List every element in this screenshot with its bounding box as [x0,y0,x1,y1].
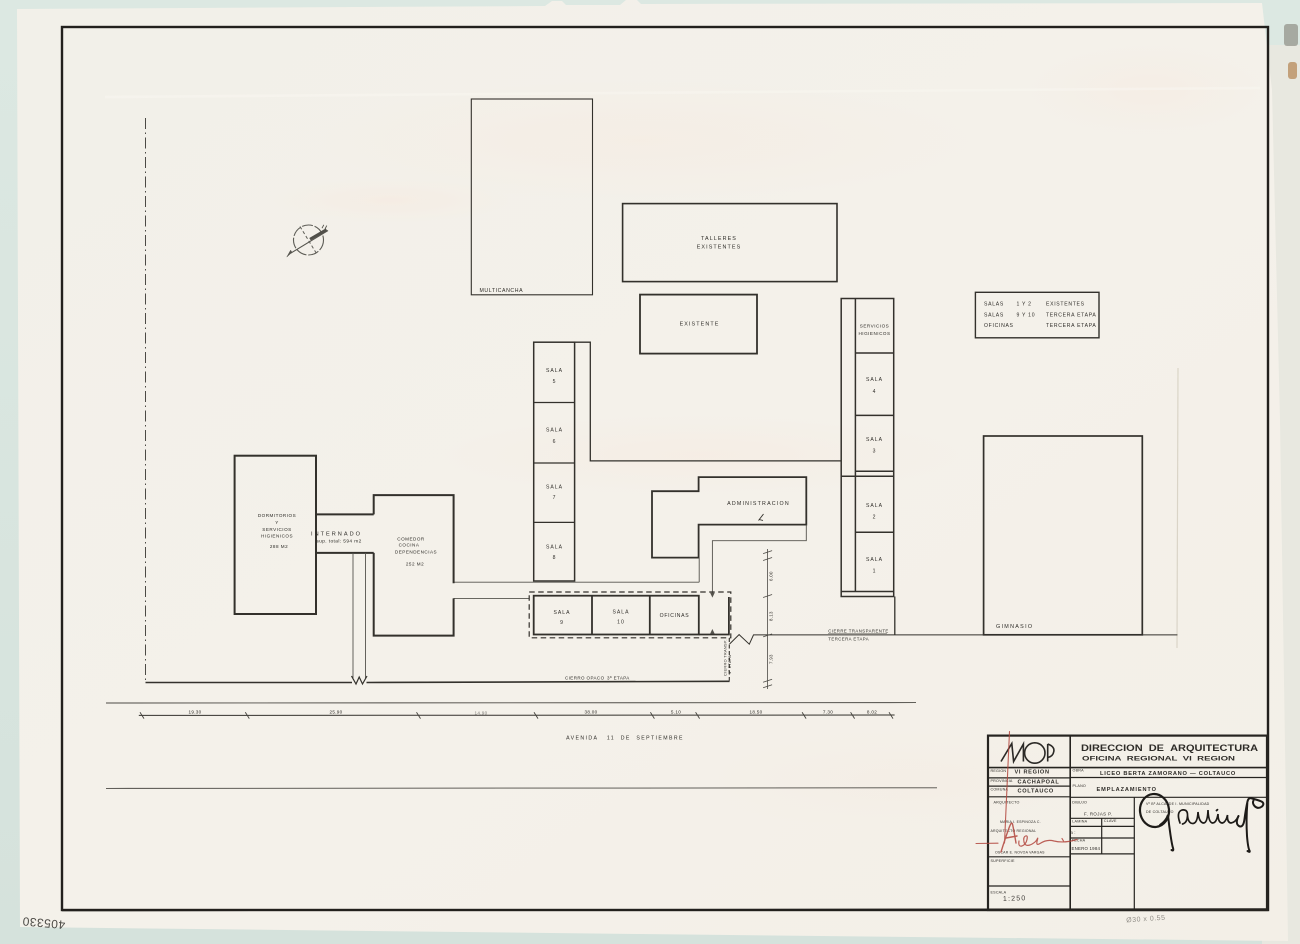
svg-text:9 Y 10: 9 Y 10 [1017,313,1036,319]
svg-text:SALAS: SALAS [984,302,1004,308]
svg-text:COCINA: COCINA [399,543,420,548]
svg-text:INTERNADO: INTERNADO [311,532,362,538]
svg-text:SALA: SALA [866,377,883,383]
svg-text:18.50: 18.50 [750,710,763,715]
svg-text:CLAVE: CLAVE [1104,819,1117,823]
svg-text:3ª ETAPA: 3ª ETAPA [607,676,630,681]
svg-text:EMPLAZAMIENTO: EMPLAZAMIENTO [1097,787,1157,793]
svg-text:F. ROJAS P.: F. ROJAS P. [1084,812,1112,817]
svg-text:SALAS: SALAS [984,313,1004,319]
svg-text:7: 7 [553,495,557,501]
svg-text:ESCALA: ESCALA [991,890,1007,894]
svg-text:Vº Bº ALCALDE I. MUNICIPALIDAD: Vº Bº ALCALDE I. MUNICIPALIDAD [1146,802,1210,806]
svg-text:sup. total: 594 m2: sup. total: 594 m2 [316,539,361,545]
svg-text:OFICINA REGIONAL VI REGION: OFICINA REGIONAL VI REGION [1082,756,1236,763]
svg-text:EXISTENTES: EXISTENTES [697,245,742,251]
svg-text:LICEO BERTA ZAMORANO — COLTAUC: LICEO BERTA ZAMORANO — COLTAUCO [1100,771,1236,777]
svg-text:CACHAPOAL: CACHAPOAL [1018,780,1060,786]
svg-text:AVENIDA 11 DE SEPTIEMBRE: AVENIDA 11 DE SEPTIEMBRE [566,736,684,742]
svg-text:DORMITORIOS: DORMITORIOS [258,513,296,518]
svg-text:5: 5 [553,379,557,385]
svg-text:MARIA I. ESPINOZA C.: MARIA I. ESPINOZA C. [1000,820,1041,824]
svg-text:MULTICANCHA: MULTICANCHA [480,288,524,294]
svg-text:25.90: 25.90 [330,710,343,715]
svg-text:OFICINAS: OFICINAS [660,613,690,619]
svg-text:ADMINISTRACION: ADMINISTRACION [727,501,790,507]
svg-text:ENERO 1984: ENERO 1984 [1072,846,1101,851]
svg-text:7.30: 7.30 [823,710,833,715]
svg-text:TERCERA ETAPA: TERCERA ETAPA [828,636,869,641]
svg-text:OSCAR E. NOVOA VARGAS: OSCAR E. NOVOA VARGAS [995,851,1045,855]
svg-text:6: 6 [553,439,557,445]
svg-text:6.00: 6.00 [768,571,773,581]
svg-text:288 M2: 288 M2 [270,544,288,549]
svg-text:VI REGION: VI REGION [1015,769,1050,775]
svg-text:TALLERES: TALLERES [701,236,737,242]
svg-text:SALA: SALA [546,428,563,434]
svg-text:252 M2: 252 M2 [406,562,424,567]
svg-text:SALA: SALA [612,610,629,616]
svg-text:3: 3 [873,449,877,455]
svg-text:COMEDOR: COMEDOR [397,537,425,542]
svg-text:SALA: SALA [866,503,883,509]
svg-text:TERCERA ETAPA: TERCERA ETAPA [1046,313,1097,319]
svg-text:19.30: 19.30 [189,710,202,715]
svg-text:EXISTENTE: EXISTENTE [680,321,720,327]
svg-text:38.00: 38.00 [585,710,598,715]
svg-text:7.93: 7.93 [768,654,773,664]
svg-text:14.90: 14.90 [475,711,488,716]
svg-text:4: 4 [873,389,877,395]
svg-text:EXISTENTES: EXISTENTES [1046,302,1085,308]
svg-text:DIRECCION DE ARQUITECTURA: DIRECCION DE ARQUITECTURA [1081,742,1258,753]
svg-text:8.02: 8.02 [867,710,877,715]
svg-text:8.13: 8.13 [768,611,773,621]
svg-text:10: 10 [617,620,625,626]
svg-text:DEPENDENCIAS: DEPENDENCIAS [395,550,437,555]
svg-text:1ª ETAPA: 1ª ETAPA [727,655,732,674]
svg-text:SALA: SALA [866,557,883,563]
svg-text:1:250: 1:250 [1003,895,1027,903]
svg-text:8: 8 [553,555,557,561]
svg-text:PLANO: PLANO [1073,784,1087,788]
svg-text:SALA: SALA [866,437,883,443]
svg-text:PROVINCIA: PROVINCIA [991,779,1013,783]
svg-text:SALA: SALA [546,368,563,374]
svg-text:SERVICIOS: SERVICIOS [262,527,291,532]
svg-text:SALA: SALA [546,545,563,551]
svg-text:1 Y 2: 1 Y 2 [1017,302,1032,308]
svg-text:HIGIENICOS: HIGIENICOS [261,534,293,539]
svg-text:REGION: REGION [991,769,1007,773]
svg-text:2: 2 [873,515,877,521]
svg-text:SALA: SALA [546,485,563,491]
svg-text:5.10: 5.10 [671,710,681,715]
svg-text:LAMINA: LAMINA [1072,819,1087,823]
svg-text:Y: Y [275,520,279,525]
svg-text:OFICINAS: OFICINAS [984,323,1014,329]
svg-text:COLTAUCO: COLTAUCO [1018,789,1054,795]
svg-text:SALA: SALA [553,610,570,616]
svg-text:GIMNASIO: GIMNASIO [996,624,1033,630]
svg-text:DIBUJO: DIBUJO [1072,800,1087,804]
svg-text:9: 9 [560,620,564,626]
svg-text:OBRA: OBRA [1073,768,1085,772]
svg-text:SERVICIOS: SERVICIOS [860,324,889,329]
svg-text:CIERRO OPACO: CIERRO OPACO [565,676,605,681]
svg-text:1: 1 [873,569,877,575]
svg-text:TERCERA ETAPA: TERCERA ETAPA [1046,323,1097,329]
svg-text:CIERRE TRANSPARENTE: CIERRE TRANSPARENTE [828,629,888,634]
svg-text:a :: a : [1071,830,1076,835]
svg-text:SUPERFICIE: SUPERFICIE [991,859,1015,863]
svg-text:HIGIENICOS: HIGIENICOS [858,331,890,336]
svg-text:COMUNA: COMUNA [991,788,1009,792]
